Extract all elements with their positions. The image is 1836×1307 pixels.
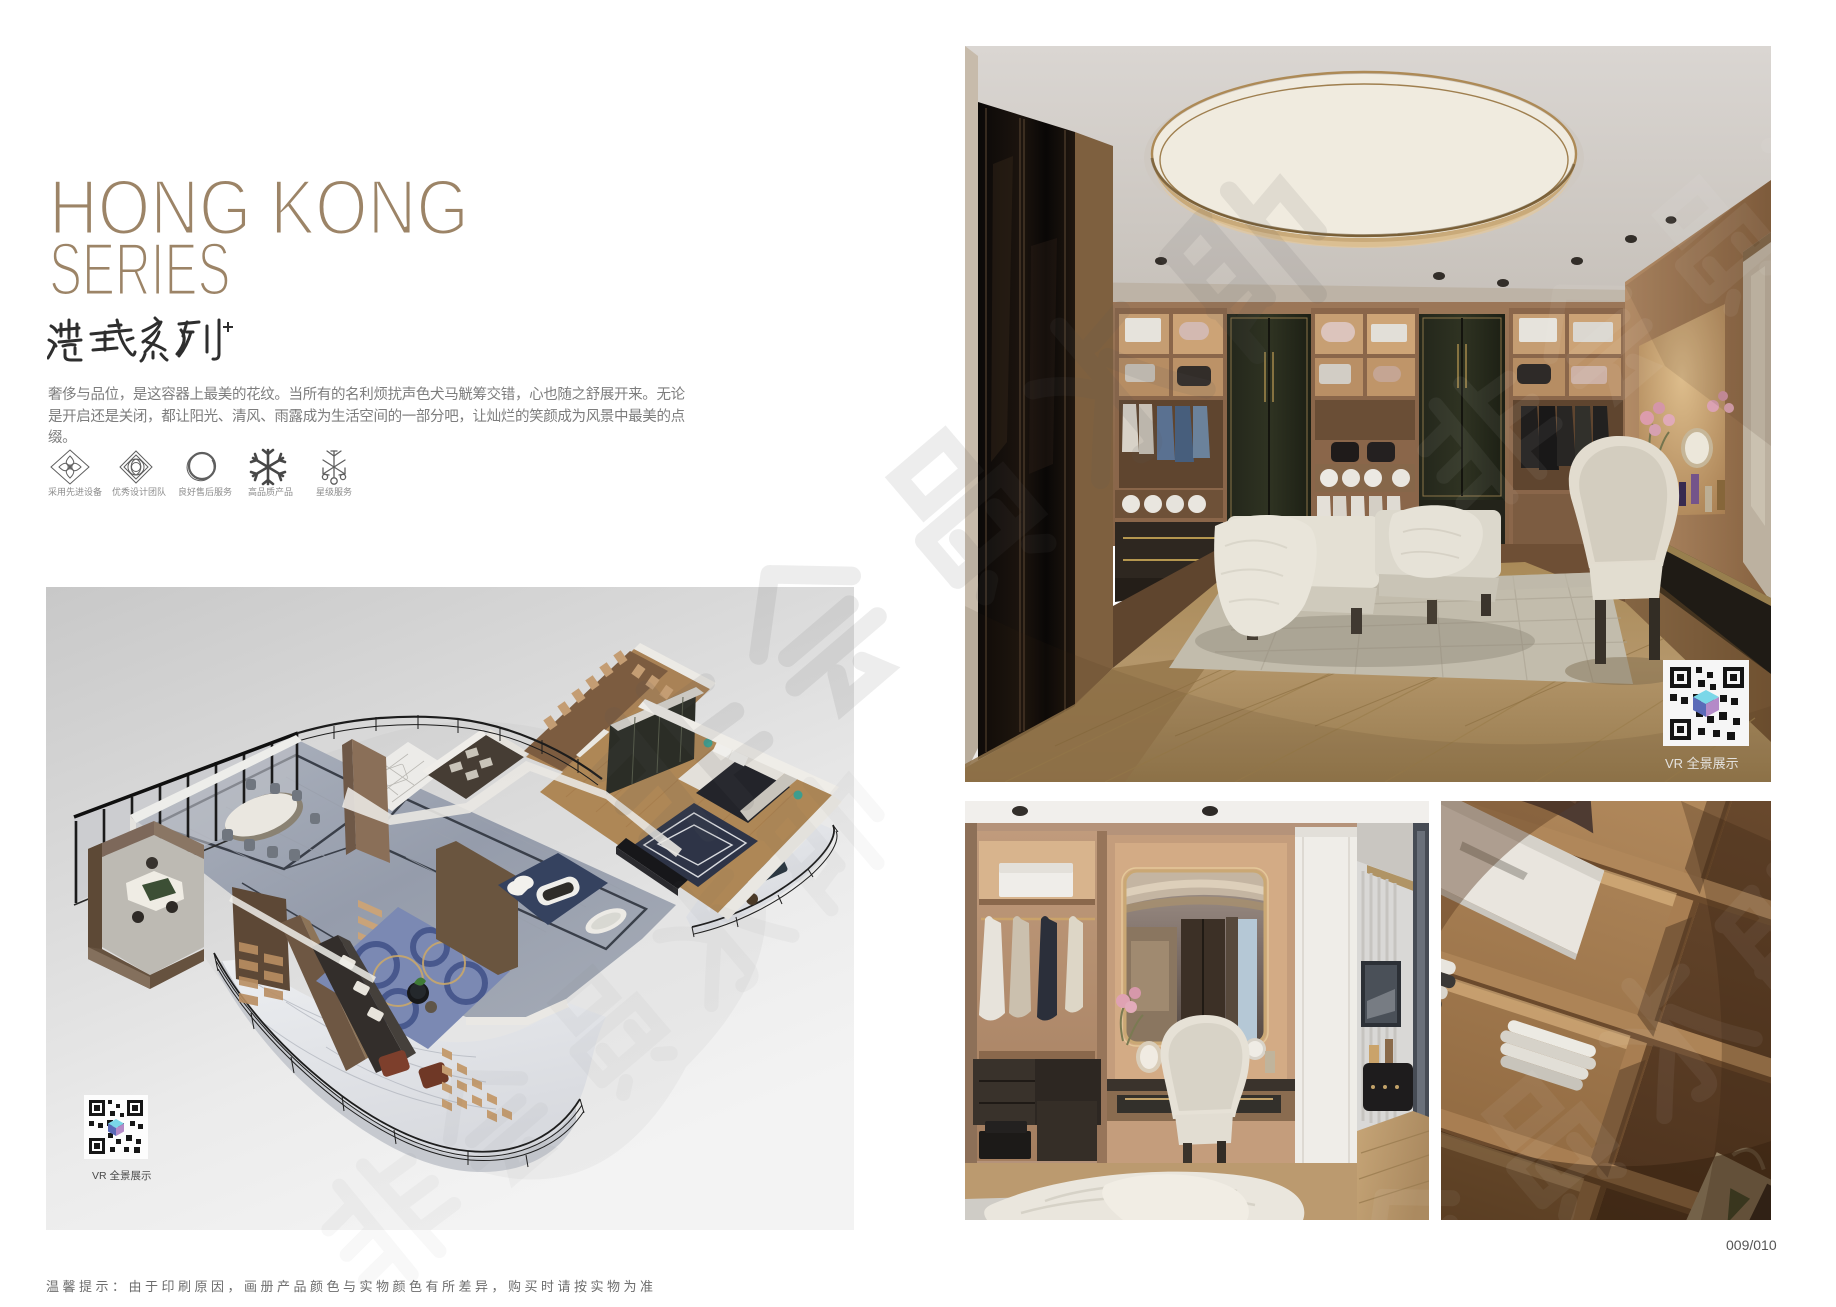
svg-text:VR 全景展示: VR 全景展示 [1665, 756, 1739, 771]
svg-text:VR 全景展示: VR 全景展示 [92, 1169, 152, 1182]
